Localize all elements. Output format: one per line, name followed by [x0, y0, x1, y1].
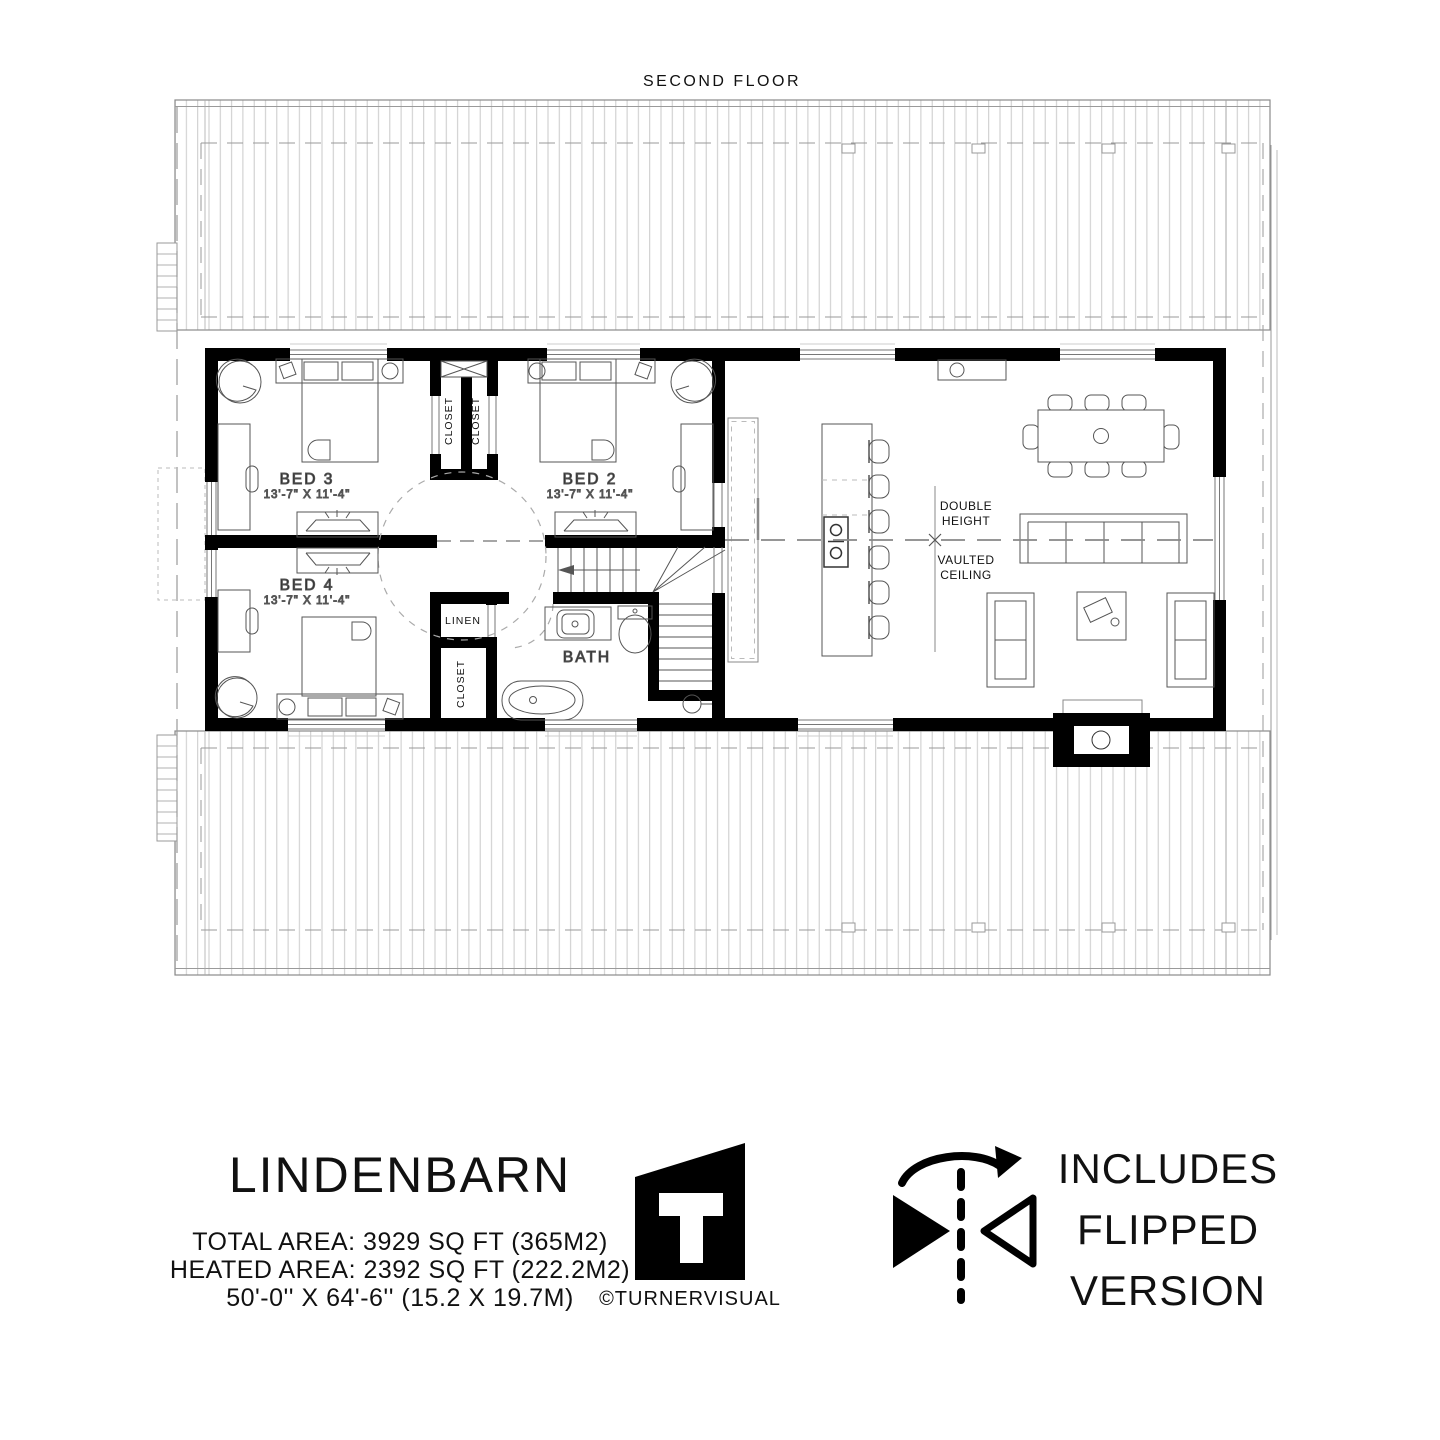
closet-label: CLOSET	[470, 397, 482, 445]
closet-door	[429, 396, 442, 454]
roof-bottom	[157, 731, 1270, 975]
sofa	[1020, 514, 1187, 563]
linen-door	[488, 605, 495, 637]
overall-size: 50'-0'' X 64'-6'' (15.2 X 19.7M)	[226, 1284, 574, 1312]
flip-icon	[893, 1146, 1033, 1300]
credit-text: ©TURNERVISUAL	[599, 1288, 781, 1310]
room-label: BED 3	[280, 471, 335, 488]
window	[547, 344, 640, 359]
flip-outline-triangle	[984, 1198, 1033, 1264]
dresser-tv	[297, 510, 378, 537]
desk	[218, 590, 258, 652]
dresser-tv	[297, 548, 378, 575]
room-bed4: BED 4 13'-7" X 11'-4"	[215, 548, 403, 719]
flip-arrow-arc	[902, 1156, 1000, 1183]
plan-name: LINDENBARN	[229, 1147, 571, 1203]
room-bed2: BED 2 13'-7" X 11'-4"	[528, 359, 716, 537]
window	[1215, 477, 1224, 600]
bath-door-swing	[509, 604, 553, 648]
round-chair	[671, 359, 716, 403]
room-bath: BATH	[502, 606, 712, 720]
room-dims: 13'-7" X 11'-4"	[264, 595, 351, 607]
flip-arrow-head	[995, 1146, 1022, 1178]
room-dims: 13'-7" X 11'-4"	[264, 489, 351, 501]
dresser-tv	[555, 510, 636, 537]
window	[207, 482, 216, 535]
annotation-line: DOUBLE	[940, 499, 992, 513]
flipped-note-line: INCLUDES	[1058, 1145, 1278, 1192]
linen-label: LINEN	[445, 615, 481, 627]
gutter-top-left	[157, 243, 177, 331]
room-label: BED 2	[563, 471, 618, 488]
total-area: TOTAL AREA: 3929 SQ FT (365M2)	[192, 1228, 608, 1256]
plan-title: SECOND FLOOR	[643, 73, 801, 90]
bath-label: BATH	[563, 649, 611, 666]
turnervisual-logo	[635, 1143, 745, 1280]
cooktop	[824, 517, 848, 567]
footer: LINDENBARN TOTAL AREA: 3929 SQ FT (365M2…	[170, 1143, 1278, 1314]
blanket-fold	[592, 440, 614, 460]
bed	[528, 359, 655, 462]
window	[1060, 344, 1155, 359]
floor-plan-page: SECOND FLOOR	[0, 0, 1440, 1440]
annotation-line: CEILING	[940, 568, 992, 582]
room-bed3: BED 3 13'-7" X 11'-4"	[216, 359, 403, 537]
chute-box	[441, 361, 487, 377]
flipped-note-line: VERSION	[1070, 1267, 1266, 1314]
bed	[277, 617, 403, 719]
flip-solid-triangle	[893, 1195, 950, 1268]
armchair-left	[987, 593, 1034, 687]
coffee-table	[1077, 592, 1126, 640]
annotation-line: VAULTED	[937, 553, 994, 567]
room-dims: 13'-7" X 11'-4"	[547, 489, 634, 501]
armchair-right	[1167, 593, 1214, 687]
stair-direction-arrow	[558, 565, 574, 575]
dining-table	[1038, 410, 1164, 462]
gutter-bottom-left	[157, 735, 177, 841]
vanity-sink	[545, 607, 611, 640]
bathtub	[502, 681, 583, 720]
dining-set	[1023, 395, 1179, 477]
round-chair	[215, 677, 257, 718]
window	[290, 344, 387, 359]
blanket-fold	[308, 440, 330, 460]
floor-plan-drawing: SECOND FLOOR	[0, 0, 1440, 1440]
interior-window	[714, 483, 722, 527]
closet-door	[486, 396, 499, 454]
annotation-line: HEIGHT	[942, 514, 991, 528]
dormer-outline	[158, 468, 205, 600]
window	[207, 550, 216, 597]
toilet	[618, 606, 652, 653]
roof-top	[157, 100, 1270, 331]
bed	[276, 359, 403, 462]
blanket-fold	[352, 622, 371, 640]
closet-label: CLOSET	[455, 660, 467, 708]
flipped-note-line: FLIPPED	[1077, 1206, 1259, 1253]
window	[800, 344, 895, 359]
desk	[218, 424, 258, 530]
heated-area: HEATED AREA: 2392 SQ FT (222.2M2)	[170, 1256, 630, 1284]
closet-label: CLOSET	[443, 397, 455, 445]
fireplace	[1053, 700, 1150, 767]
desk	[673, 424, 713, 530]
vaulted-ceiling-annotation: DOUBLE HEIGHT VAULTED CEILING	[725, 486, 1213, 652]
round-chair	[216, 359, 261, 403]
room-label: BED 4	[280, 577, 335, 594]
wall-shelf	[938, 360, 1006, 380]
